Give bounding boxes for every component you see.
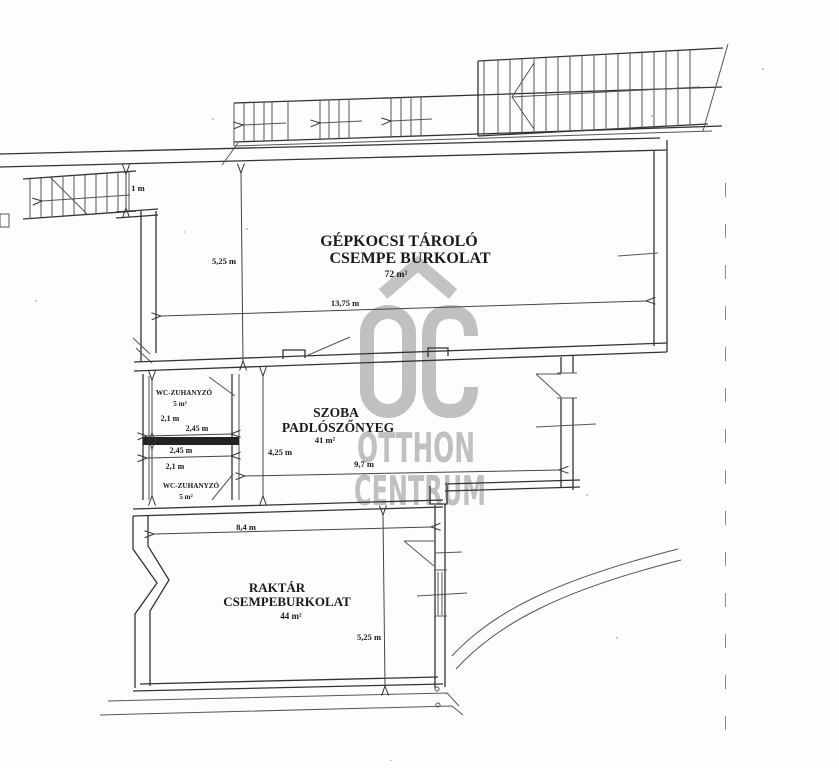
dim-label-garage-height: 5,25 m (212, 256, 236, 266)
garage-name-line1: GÉPKOCSI TÁROLÓ (320, 231, 478, 250)
wall-hatch (133, 338, 152, 363)
garage-name-line2: CSEMPE BURKOLAT (329, 250, 490, 267)
garage-area: 72 m² (385, 270, 408, 280)
site-line-lower-2 (100, 706, 463, 715)
dim-raktar-height (383, 515, 385, 686)
stair-break-line (50, 177, 88, 215)
dim-label-szoba-width: 9,7 m (354, 459, 374, 469)
raktar-name-line1: RAKTÁR (249, 580, 306, 595)
dim-label-wc-bottom-width: 2,45 m (170, 446, 193, 455)
wc-top-name: WC-ZUHANYZÓ (156, 387, 213, 397)
raktar-left-wall-outer (133, 516, 157, 688)
wall-niche-1 (283, 350, 305, 359)
curved-path-lines (452, 549, 681, 669)
dim-label-raktar-width: 8,4 m (236, 522, 256, 532)
wall-joint-tick (618, 253, 658, 256)
wc-dividing-wall (143, 437, 239, 445)
dim-wc-bottom-width (147, 456, 231, 458)
wc-bottom-name: WC-ZUHANYZÓ (163, 480, 220, 490)
stair-direction-arrow (42, 195, 130, 201)
garage-door-swing (306, 337, 350, 356)
staircase-top-right (478, 44, 728, 136)
door-frame-ticks (557, 373, 577, 398)
wall-joint-tick (536, 424, 596, 427)
dim-label-wc-top-height: 2,1 m (161, 414, 180, 423)
dim-label-raktar-height: 5,25 m (357, 632, 381, 642)
garage-bottom-wall-outer (134, 352, 667, 371)
dim-label-wc-top-width: 2,45 m (186, 424, 209, 433)
floorplan-scan: OTTHON CENTRUM (0, 0, 839, 768)
garage-bottom-wall-inner (134, 343, 667, 362)
dim-label-szoba-height: 4,25 m (268, 447, 292, 457)
steps-group-2 (320, 99, 349, 139)
raktar-left-wall-inner (148, 516, 169, 686)
steps-group-3 (391, 97, 421, 137)
raktar-name-line2: CSEMPEBURKOLAT (223, 594, 351, 609)
dim-wc-top-width (147, 434, 231, 436)
szoba-name-line1: SZOBA (313, 405, 359, 420)
corner-mark-1 (435, 687, 439, 691)
raktar-bottom-wall-outer (133, 684, 443, 691)
raktar-area: 44 m² (280, 611, 302, 621)
site-line-lower-1 (108, 693, 459, 706)
szoba-door-swing (536, 374, 561, 397)
watermark-letter-c (429, 312, 471, 411)
boundary-post (0, 214, 9, 227)
otthon-centrum-watermark: OTTHON CENTRUM (354, 264, 486, 515)
dim-label-garage-width: 13,75 m (331, 298, 359, 308)
wc-top-door-swing (209, 377, 235, 396)
stair-direction-arrow-2 (320, 121, 362, 123)
dim-label-stair-width: 1 m (131, 183, 144, 193)
dim-raktar-width (154, 527, 431, 534)
szoba-name-line2: PADLÓSZŐNYEG (282, 420, 395, 435)
floorplan-drawing: OTTHON CENTRUM (0, 0, 839, 768)
wc-bottom-area: 5 m² (179, 493, 193, 501)
raktar-bottom-wall-inner (140, 677, 438, 684)
wall-tick-1 (435, 552, 462, 553)
dim-garage-height (241, 173, 243, 361)
wc-top-area: 5 m² (173, 400, 187, 408)
steps-group-1 (244, 101, 288, 142)
raktar-door-swing (404, 541, 434, 566)
szoba-area: 41 m² (315, 435, 336, 445)
dim-label-wc-bottom-height: 2,1 m (166, 462, 185, 471)
